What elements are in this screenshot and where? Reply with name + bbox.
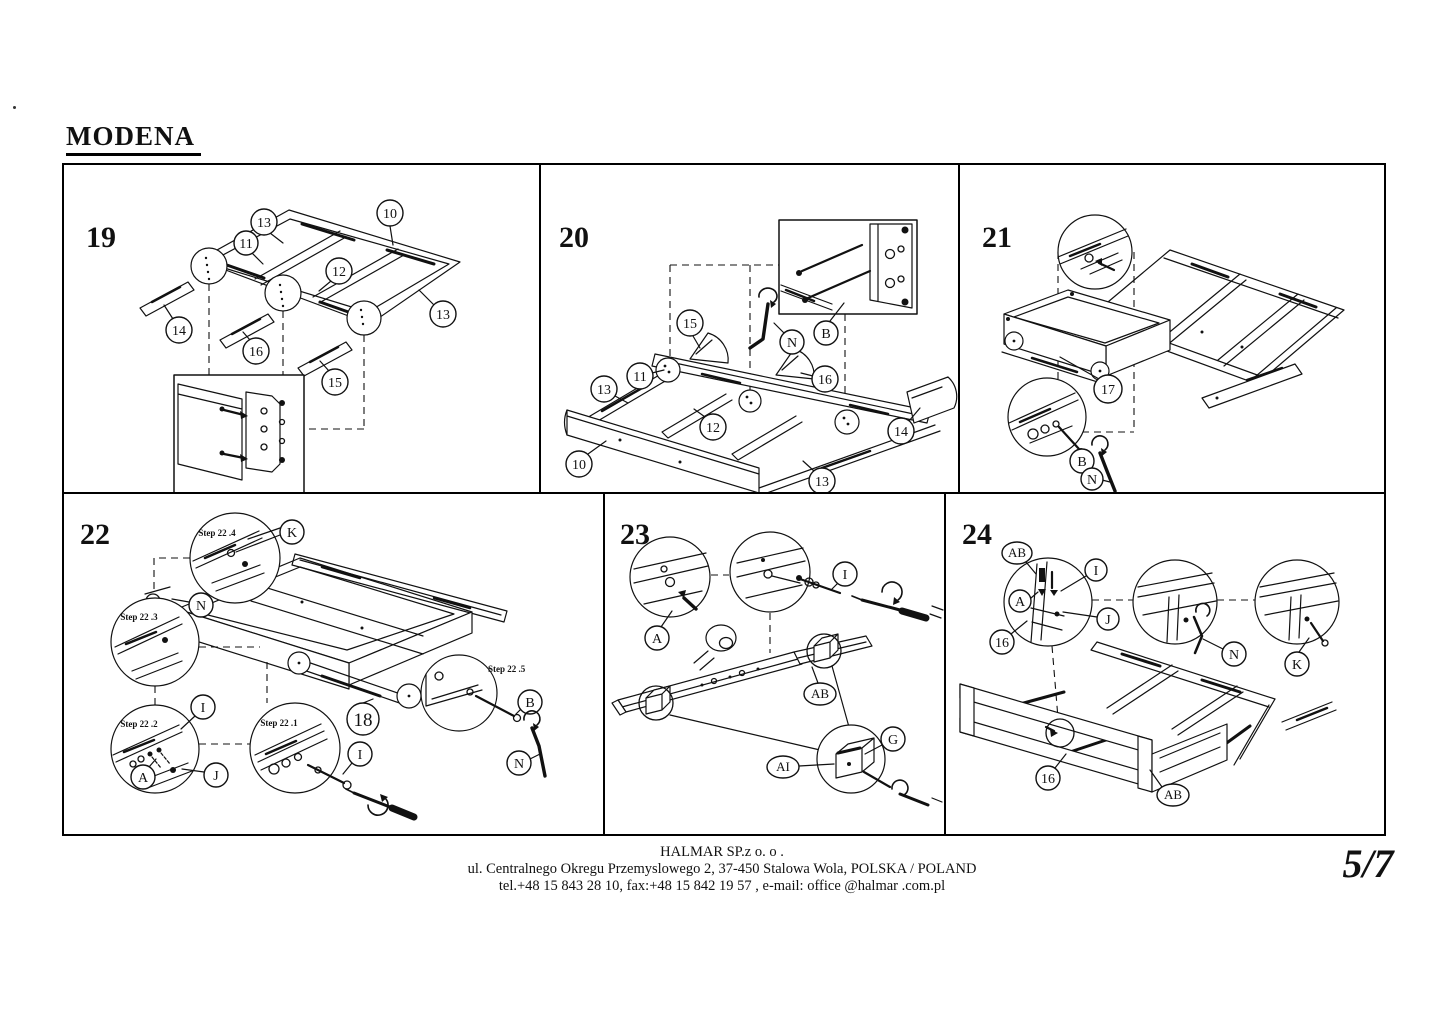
substep-22-1-magnifier: Step 22 .1 xyxy=(250,703,340,793)
svg-text:I: I xyxy=(201,701,206,716)
screwdriver-icon xyxy=(892,780,942,805)
svg-text:Step 22 .3: Step 22 .3 xyxy=(120,612,158,622)
svg-text:14: 14 xyxy=(894,425,908,440)
svg-text:14: 14 xyxy=(172,324,186,339)
footer: HALMAR SP.z o. o . ul. Centralnego Okreg… xyxy=(62,844,1382,895)
footer-contact: tel.+48 15 843 28 10, fax:+48 15 842 19 … xyxy=(62,878,1382,895)
callout-I: I xyxy=(181,695,215,729)
step-number: 24 xyxy=(962,518,992,551)
svg-text:A: A xyxy=(138,771,149,786)
svg-text:Step 22 .4: Step 22 .4 xyxy=(198,528,236,538)
side-panel-14 xyxy=(907,377,957,423)
svg-text:I: I xyxy=(1094,564,1099,579)
callout-16: 16 xyxy=(1036,754,1066,790)
callout-16: 16 xyxy=(243,332,269,364)
joint-magnifier xyxy=(656,358,680,382)
svg-text:12: 12 xyxy=(332,265,346,280)
callout-A: A xyxy=(645,611,672,650)
step-number: 20 xyxy=(559,221,589,254)
step-24-panel: 24 AB I A J 16 N xyxy=(944,492,1384,834)
svg-text:J: J xyxy=(213,769,219,784)
svg-text:Step 22 .2: Step 22 .2 xyxy=(120,719,158,729)
detail-inset xyxy=(174,375,304,492)
svg-text:Step 22 .5: Step 22 .5 xyxy=(488,664,526,674)
screwdriver-icon xyxy=(852,582,943,618)
svg-text:N: N xyxy=(514,757,524,772)
svg-text:G: G xyxy=(888,733,898,748)
callout-B: B xyxy=(516,690,542,714)
svg-text:AB: AB xyxy=(1164,787,1182,802)
slide-rail-15 xyxy=(298,342,352,376)
svg-text:I: I xyxy=(358,748,363,763)
screwdriver-icon xyxy=(346,789,414,817)
callout-AB: AB xyxy=(804,667,836,705)
svg-text:18: 18 xyxy=(354,710,373,731)
detail-inset xyxy=(779,220,917,314)
svg-text:AB: AB xyxy=(1008,545,1026,560)
front-panel-10 xyxy=(567,410,759,492)
svg-text:N: N xyxy=(196,599,206,614)
svg-text:J: J xyxy=(1105,613,1111,628)
svg-text:13: 13 xyxy=(436,308,450,323)
step-20-panel: 20 xyxy=(539,165,958,492)
svg-text:A: A xyxy=(652,632,663,647)
step-number: 22 xyxy=(80,518,110,551)
substep-22-5-magnifier: Step 22 .5 xyxy=(421,655,526,731)
part-label-18: 18 xyxy=(347,699,379,735)
rail-magnifier-top xyxy=(1058,215,1132,289)
svg-text:16: 16 xyxy=(818,373,832,388)
svg-text:11: 11 xyxy=(239,237,252,252)
svg-text:B: B xyxy=(525,696,534,711)
hole-magnifier-middle xyxy=(730,532,810,612)
step-22-panel: 22 Step 22 .4 xyxy=(64,492,603,834)
pin-magnifier-left xyxy=(630,537,710,617)
joint-magnifier xyxy=(739,390,761,412)
callout-12: 12 xyxy=(319,258,352,291)
print-artifact-dot xyxy=(13,106,16,109)
callout-14: 14 xyxy=(164,305,192,343)
svg-text:N: N xyxy=(1229,648,1239,663)
drawer-box-17 xyxy=(1002,290,1170,384)
svg-text:B: B xyxy=(821,327,830,342)
svg-text:10: 10 xyxy=(572,458,586,473)
footer-company: HALMAR SP.z o. o . xyxy=(62,844,1382,861)
callout-I: I xyxy=(832,562,857,589)
steps-grid: 19 xyxy=(62,163,1386,836)
step-21-panel: 21 xyxy=(958,165,1384,492)
allen-key-icon xyxy=(750,288,777,348)
step-number: 21 xyxy=(982,221,1012,254)
svg-text:13: 13 xyxy=(815,475,829,490)
step-19-panel: 19 xyxy=(64,165,539,492)
svg-text:12: 12 xyxy=(706,421,720,436)
step-number: 19 xyxy=(86,221,116,254)
step-23-panel: 23 A I xyxy=(603,492,944,834)
substep-22-4-magnifier: Step 22 .4 xyxy=(190,513,280,603)
block-magnifier-bottom xyxy=(817,725,885,793)
svg-text:I: I xyxy=(843,568,848,583)
svg-text:13: 13 xyxy=(597,383,611,398)
svg-text:Step 22 .1: Step 22 .1 xyxy=(260,718,298,728)
svg-text:A: A xyxy=(1015,595,1026,610)
drawer-assembly-drawing xyxy=(565,333,957,492)
page-title: MODENA xyxy=(66,121,201,156)
callout-10: 10 xyxy=(566,441,606,477)
bracket-wing-15 xyxy=(690,333,728,363)
front-frame-drawing xyxy=(960,684,1227,792)
svg-text:16: 16 xyxy=(1041,772,1055,787)
callout-I: I xyxy=(343,742,372,774)
page-number: 5/7 xyxy=(1318,840,1418,887)
svg-text:K: K xyxy=(1292,658,1302,673)
svg-text:AB: AB xyxy=(811,686,829,701)
callout-N: N xyxy=(1203,639,1246,666)
callout-12: 12 xyxy=(694,409,726,440)
svg-text:AI: AI xyxy=(776,759,790,774)
callout-15: 15 xyxy=(320,361,348,395)
svg-text:16: 16 xyxy=(249,345,263,360)
svg-text:16: 16 xyxy=(995,636,1009,651)
svg-text:10: 10 xyxy=(383,207,397,222)
callout-N: N xyxy=(507,751,540,775)
joint-magnifier xyxy=(347,301,381,335)
callout-15: 15 xyxy=(677,310,703,348)
screw-magnifier-right xyxy=(1255,560,1339,646)
svg-text:N: N xyxy=(1087,473,1097,488)
svg-text:15: 15 xyxy=(683,317,697,332)
roller-part-drawing xyxy=(694,625,736,670)
svg-text:13: 13 xyxy=(257,216,271,231)
svg-text:11: 11 xyxy=(633,370,646,385)
svg-text:17: 17 xyxy=(1101,383,1115,398)
svg-text:15: 15 xyxy=(328,376,342,391)
substep-22-3-magnifier: Step 22 .3 xyxy=(111,598,199,686)
callout-13: 13 xyxy=(419,290,456,327)
footer-address: ul. Centralnego Okregu Przemyslowego 2, … xyxy=(62,861,1382,878)
svg-text:K: K xyxy=(287,526,297,541)
instruction-sheet: MODENA 19 xyxy=(0,0,1445,1021)
slide-rail-14 xyxy=(140,282,194,316)
joint-magnifier xyxy=(835,410,859,434)
svg-text:N: N xyxy=(787,336,797,351)
svg-text:B: B xyxy=(1077,455,1086,470)
callout-N: N xyxy=(774,323,804,354)
